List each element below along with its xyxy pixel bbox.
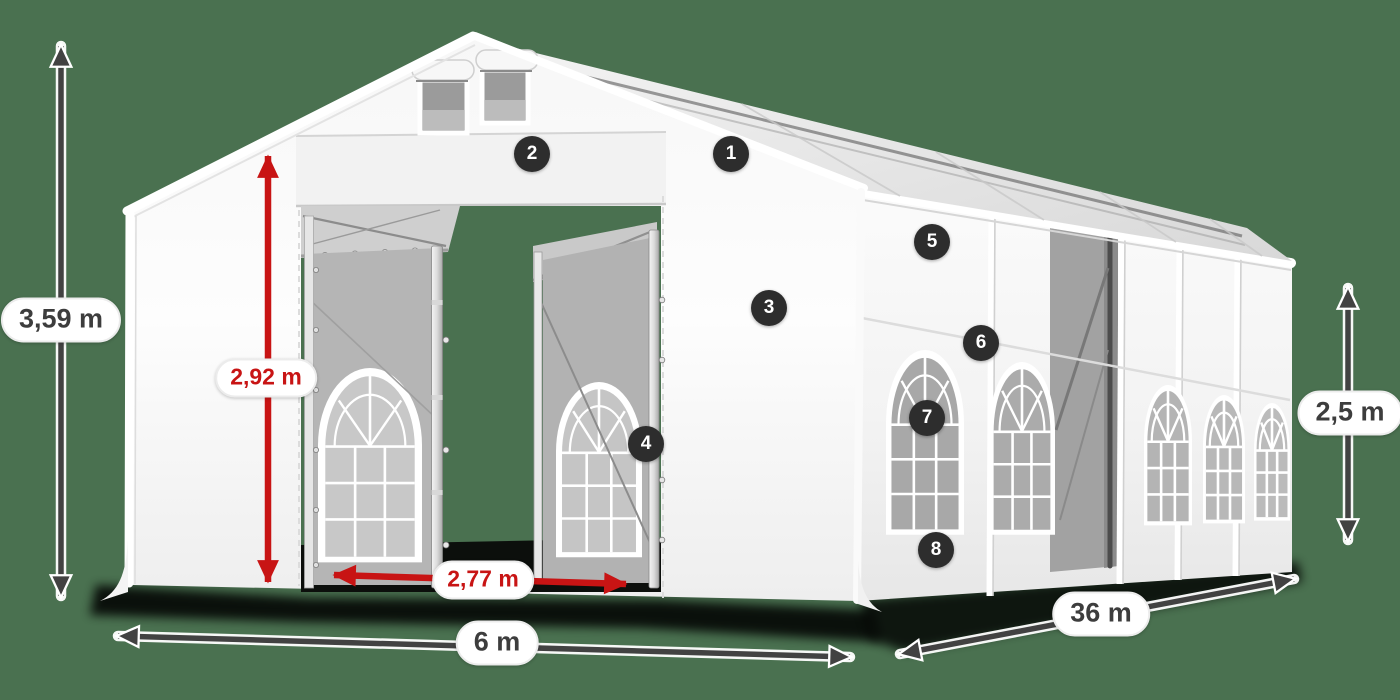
tent-dimension-diagram: 3,59 m 2,92 m 2,77 m 6 m 36 m 2,5 m 1 2 … — [0, 0, 1400, 700]
dimension-label-front-width: 6 m — [456, 621, 539, 666]
tent-illustration — [0, 0, 1400, 700]
feature-badge-8: 8 — [918, 532, 954, 568]
dimension-label-entrance-width: 2,77 m — [432, 561, 534, 600]
dimension-label-length: 36 m — [1052, 592, 1150, 637]
side-window — [989, 362, 1055, 535]
feature-badge-3: 3 — [751, 290, 787, 326]
tent-entrance-interior — [301, 206, 665, 592]
side-window — [886, 350, 964, 535]
dimension-label-total-height: 3,59 m — [1, 298, 121, 343]
side-window — [1254, 403, 1290, 521]
entrance-header-band — [296, 132, 666, 206]
side-window — [1144, 385, 1192, 525]
feature-badge-5: 5 — [914, 224, 950, 260]
feature-badge-1: 1 — [713, 136, 749, 172]
dimension-label-side-height: 2,5 m — [1297, 391, 1400, 436]
side-window — [1203, 395, 1245, 523]
dimension-label-entrance-height: 2,92 m — [215, 359, 317, 398]
feature-badge-4: 4 — [628, 426, 664, 462]
feature-badge-2: 2 — [514, 136, 550, 172]
feature-badge-6: 6 — [963, 325, 999, 361]
feature-badge-7: 7 — [909, 400, 945, 436]
